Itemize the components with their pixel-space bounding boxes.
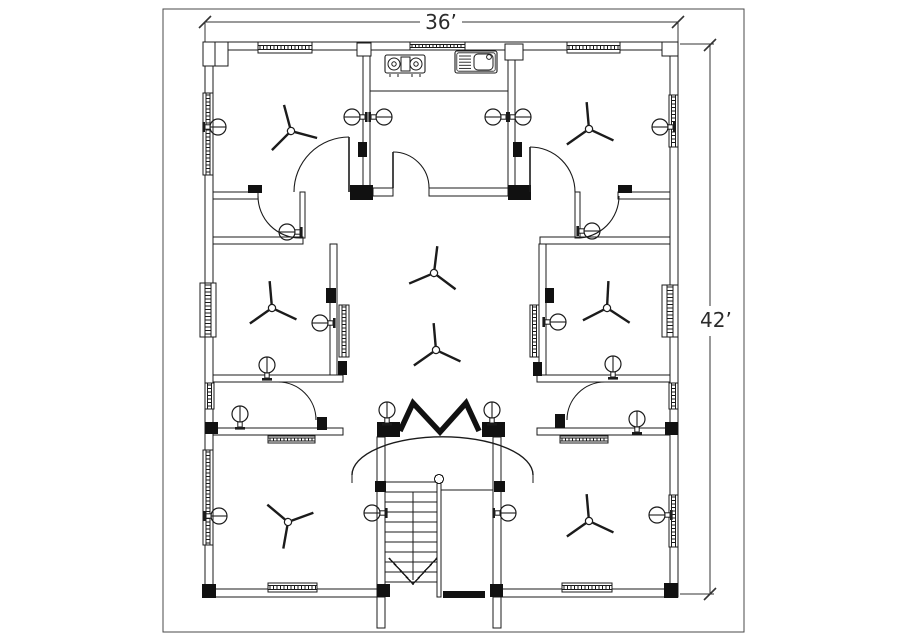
column-block <box>533 362 542 376</box>
sink-icon <box>455 51 497 73</box>
window-symbol <box>339 305 349 357</box>
ceiling-fan-icon <box>567 494 614 536</box>
column-block <box>555 414 565 428</box>
wall-light-icon <box>368 109 392 125</box>
door-swing <box>294 137 349 192</box>
column-block <box>494 481 505 492</box>
arched-opening <box>352 437 533 475</box>
column-block <box>665 422 678 435</box>
walls <box>205 42 678 628</box>
column-block <box>202 584 216 598</box>
window-symbol <box>268 583 317 592</box>
ceiling-fan-icon <box>414 323 461 365</box>
wall-light-icon <box>507 109 531 125</box>
window-symbol <box>268 436 315 443</box>
window-symbol <box>669 495 678 547</box>
ceiling-fan-icon <box>567 102 614 144</box>
column-block <box>375 481 386 492</box>
window-symbol <box>567 42 620 53</box>
column-block <box>513 142 522 157</box>
page-border <box>163 9 744 632</box>
entrance-chevron <box>400 403 479 432</box>
column-block <box>490 584 503 597</box>
column-block <box>545 288 554 303</box>
wall-light-icon <box>492 505 516 521</box>
window-symbol <box>669 383 678 409</box>
window-symbol <box>562 583 612 592</box>
window-symbol <box>410 42 465 50</box>
column-block <box>338 361 347 375</box>
wall-light-icon <box>232 406 248 430</box>
window-symbol <box>203 450 213 545</box>
window-symbol <box>200 283 216 337</box>
wall-light-icon <box>605 356 621 380</box>
column-block <box>358 142 367 157</box>
column-block <box>377 584 390 597</box>
wall-light-icon <box>259 357 275 381</box>
door-swing <box>567 382 605 420</box>
column-block <box>508 185 531 200</box>
column-block <box>317 417 327 430</box>
wall-light-icon <box>629 411 645 435</box>
door-swings <box>258 137 619 420</box>
window-symbol <box>258 42 312 53</box>
window-symbol <box>662 285 678 337</box>
wall-light-icon <box>364 505 388 521</box>
window-symbol <box>530 305 539 357</box>
wall-lights <box>202 109 675 524</box>
door-swing <box>278 382 316 420</box>
wall-lines <box>352 91 533 580</box>
column-block <box>326 288 336 303</box>
ceiling-fan-icon <box>409 242 463 293</box>
ceiling-fans <box>250 100 635 553</box>
wall-light-icon <box>344 109 368 125</box>
column-block <box>205 422 218 434</box>
column-block <box>443 591 485 598</box>
floor-plan-drawing: 36’ 42’ <box>0 0 906 640</box>
window-symbol <box>205 383 214 409</box>
dimension-height-label: 42’ <box>700 308 732 332</box>
door-swing <box>393 152 429 188</box>
wall-light-icon <box>312 315 336 331</box>
wall-light-icon <box>485 109 509 125</box>
ceiling-fan-icon <box>583 278 635 326</box>
column-block <box>664 583 678 598</box>
ceiling-fan-icon <box>265 100 318 150</box>
stove-icon <box>385 55 425 77</box>
window-symbol <box>669 95 678 147</box>
column-block <box>248 185 262 193</box>
floor-plan-canvas: 36’ 42’ <box>0 0 906 640</box>
door-swing <box>530 147 575 192</box>
ceiling-fan-icon <box>250 281 297 323</box>
staircase <box>385 475 444 585</box>
window-symbol <box>203 93 213 175</box>
column-block <box>618 185 632 193</box>
window-symbol <box>560 436 608 443</box>
column-block <box>350 185 373 200</box>
dimension-width-label: 36’ <box>425 10 457 34</box>
ceiling-fan-icon <box>257 501 313 554</box>
